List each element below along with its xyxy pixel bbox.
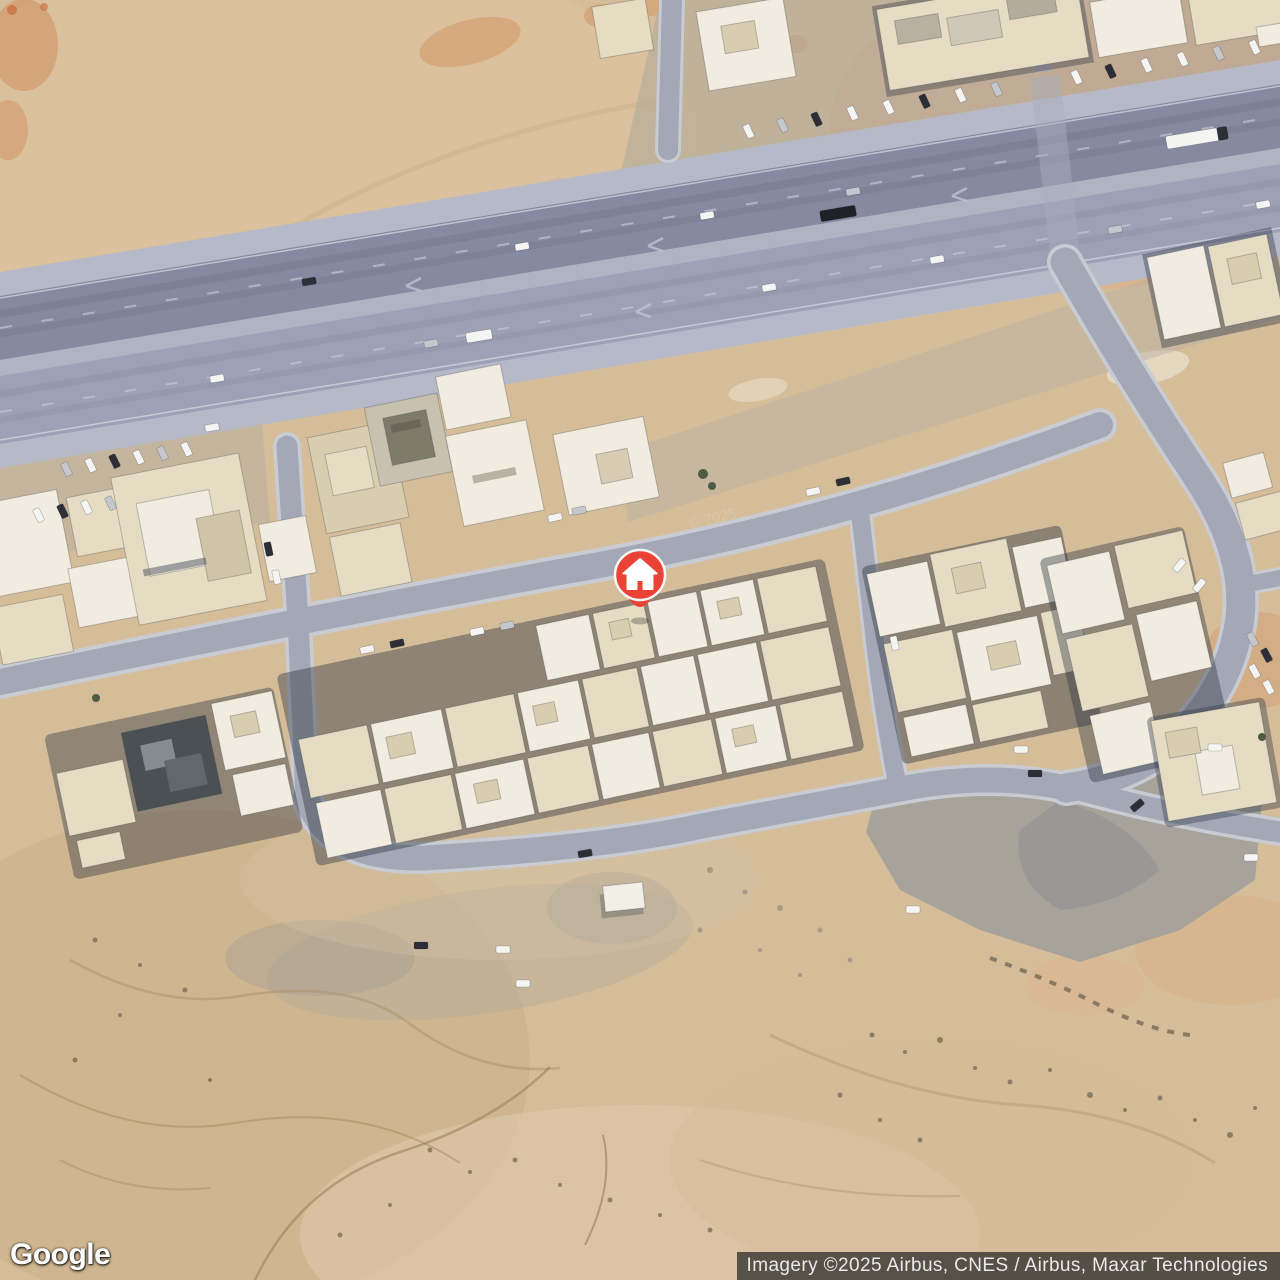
building-cluster — [1146, 697, 1280, 828]
attribution-text: Imagery ©2025 Airbus, CNES / Airbus, Max… — [747, 1255, 1268, 1276]
satellite-image: © 2025 — [0, 0, 1280, 1280]
map-viewport[interactable]: © 2025 — [0, 0, 1280, 1280]
google-logo[interactable]: Google — [10, 1238, 110, 1272]
building-cluster — [553, 416, 660, 515]
attribution-bar: Imagery ©2025 Airbus, CNES / Airbus, Max… — [737, 1252, 1280, 1280]
marker-shadow — [631, 618, 649, 625]
shed — [599, 882, 646, 918]
